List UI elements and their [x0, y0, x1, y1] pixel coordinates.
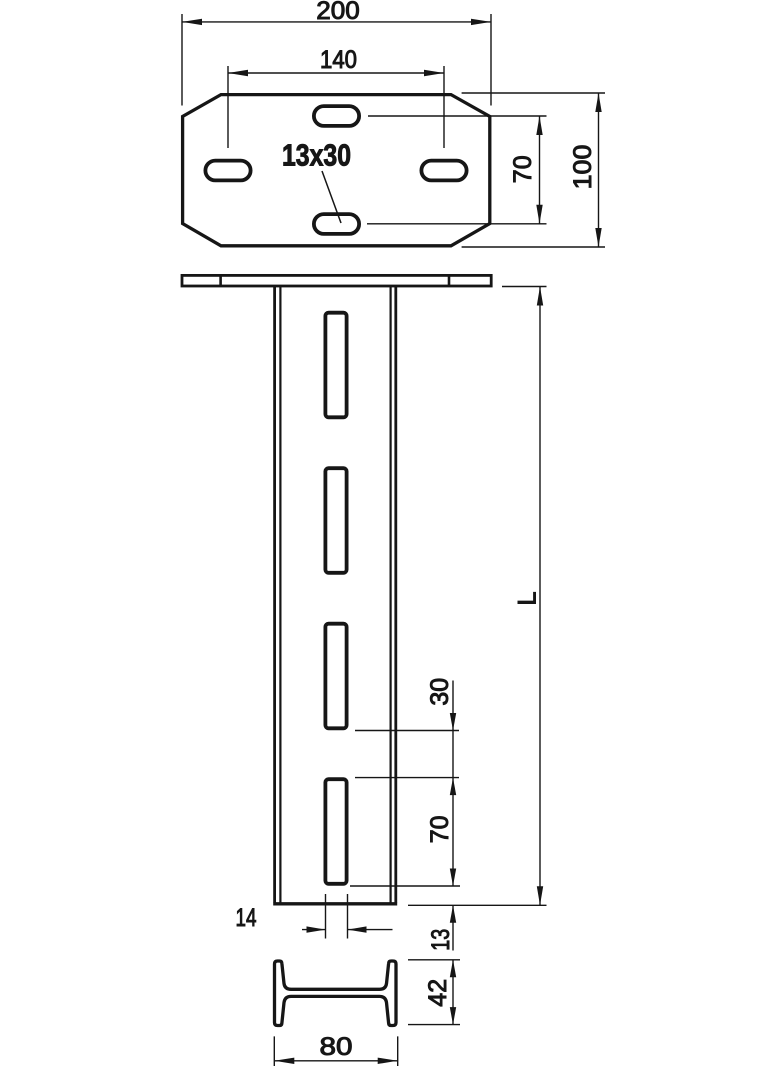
svg-text:70: 70: [509, 155, 537, 183]
svg-text:13x30: 13x30: [282, 138, 351, 173]
svg-text:200: 200: [316, 0, 360, 25]
svg-text:42: 42: [424, 979, 452, 1007]
svg-text:30: 30: [426, 678, 454, 706]
svg-text:L: L: [513, 591, 541, 605]
svg-text:140: 140: [320, 46, 357, 74]
svg-text:14: 14: [236, 904, 257, 932]
svg-text:13: 13: [427, 929, 455, 951]
svg-text:80: 80: [320, 1033, 353, 1061]
svg-text:70: 70: [426, 815, 454, 843]
svg-text:100: 100: [569, 145, 597, 190]
